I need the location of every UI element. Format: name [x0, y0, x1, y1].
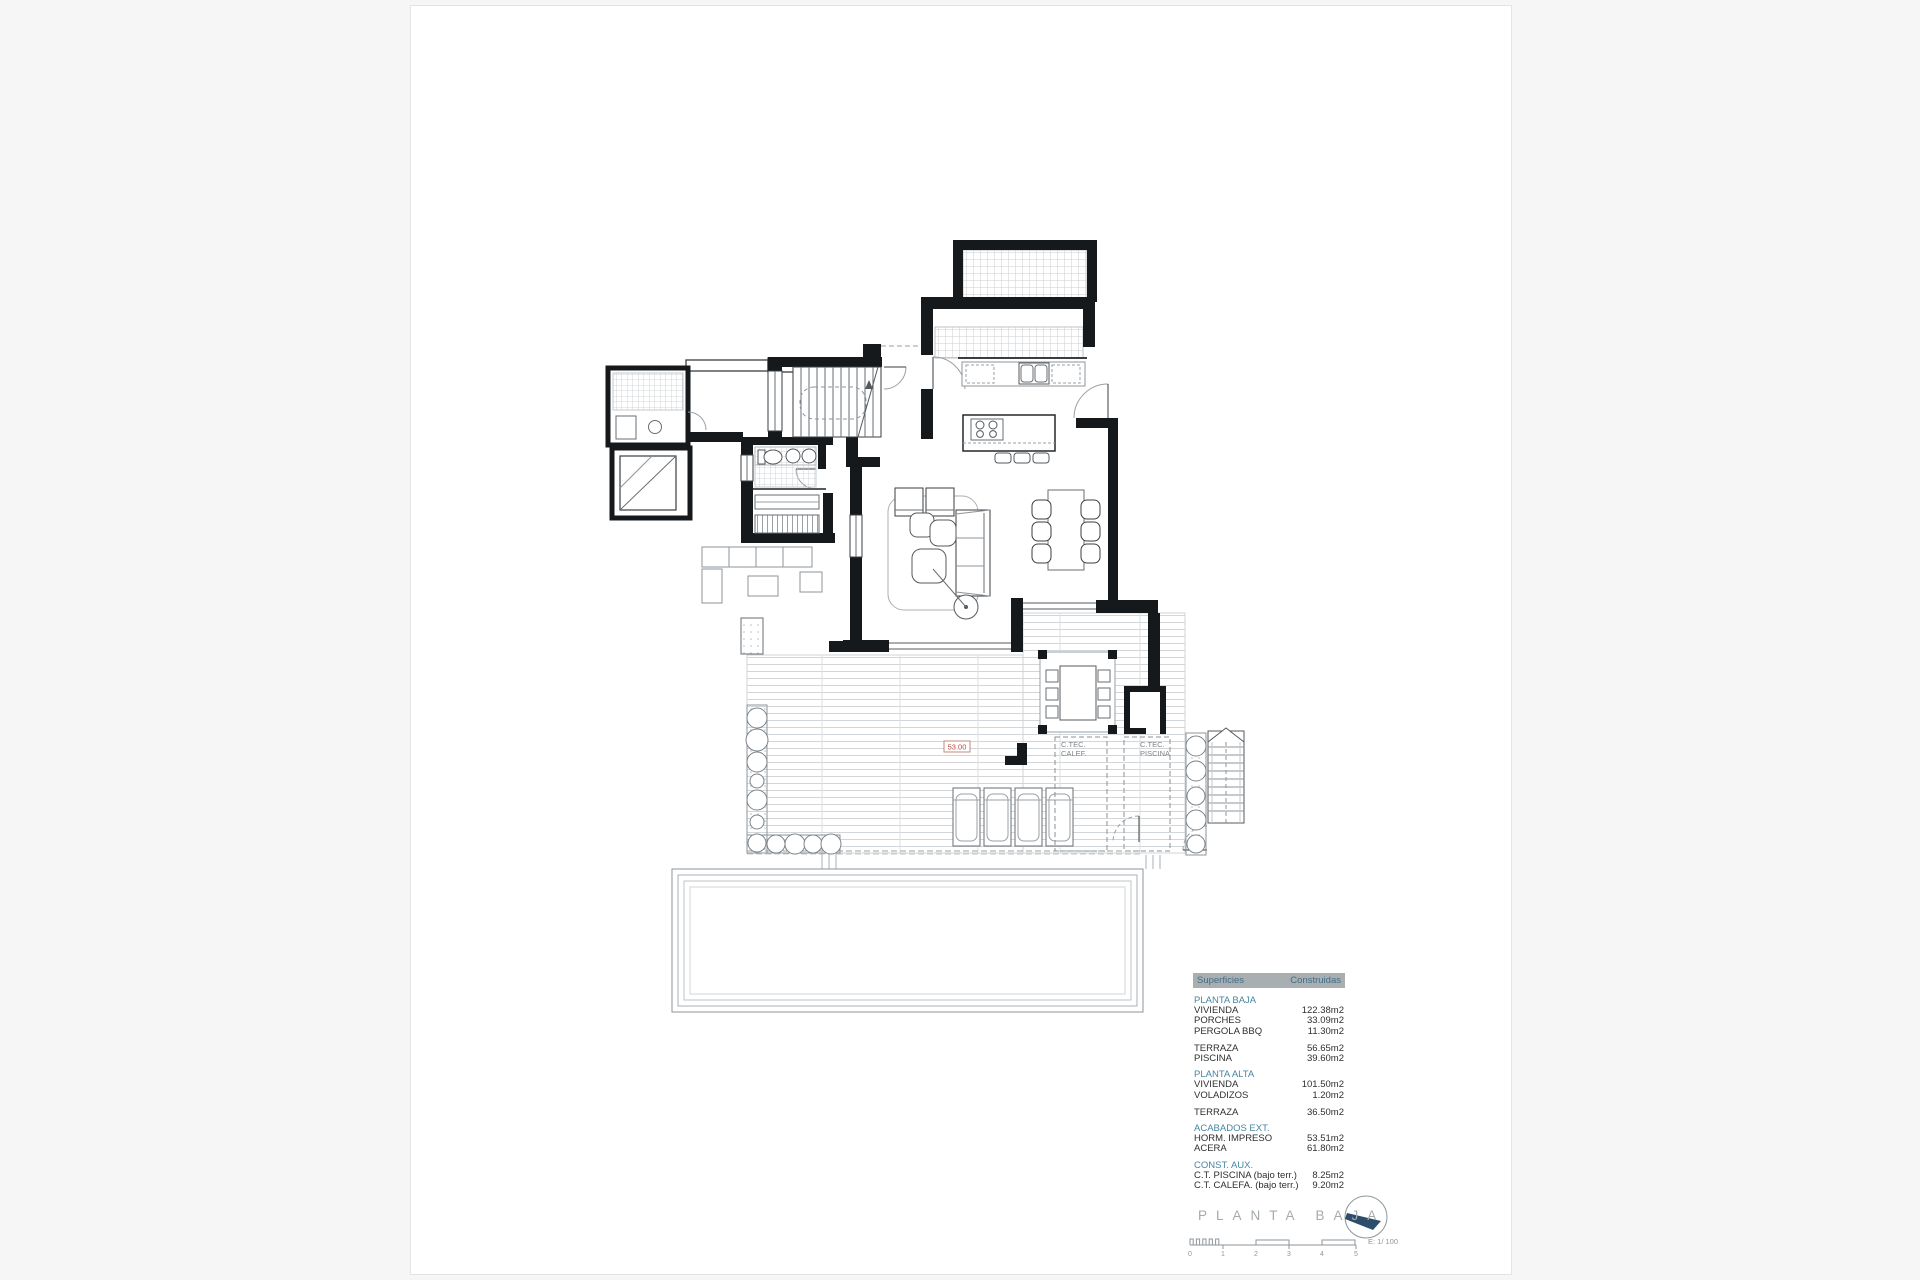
ctec-piscina-label-1: C.TEC.: [1140, 740, 1165, 749]
kitchen-porch: [881, 327, 1083, 358]
area-row: PISCINA39.60m2: [1193, 1054, 1345, 1064]
pergola-bbq: [953, 240, 1097, 302]
bathroom: [753, 447, 826, 489]
pool: [672, 869, 1143, 1012]
dining-set: [1032, 490, 1100, 570]
scale-bar: 0 1 2 3 4 5 E: 1/ 100: [1188, 1237, 1398, 1258]
closet-room: [755, 495, 819, 533]
level-mark-text: 53.00: [948, 743, 967, 752]
svg-text:4: 4: [1320, 1251, 1324, 1258]
ctec-calef-label-2: CALEF.: [1061, 749, 1086, 758]
area-row: C.T. CALEFA. (bajo terr.)9.20m2: [1193, 1181, 1345, 1191]
exterior-stairs: [1208, 728, 1244, 823]
area-row: TERRAZA36.50m2: [1193, 1108, 1345, 1118]
areas-col-superficies: Superficies: [1197, 975, 1244, 986]
pergola-dining: [1038, 650, 1117, 734]
area-row: PERGOLA BBQ11.30m2: [1193, 1027, 1345, 1037]
living-room: [888, 488, 990, 619]
area-row: ACERA61.80m2: [1193, 1144, 1345, 1154]
porch-lounge: [702, 547, 822, 654]
scale-ticks: 0 1 2 3 4 5: [1188, 1251, 1358, 1258]
ctec-piscina-label-2: PISCINA: [1140, 749, 1170, 758]
plan-title: PLANTA BAJA: [1198, 1208, 1398, 1223]
area-row: VOLADIZOS1.20m2: [1193, 1091, 1345, 1101]
scale-ratio-label: E: 1/ 100: [1368, 1237, 1398, 1246]
svg-text:1: 1: [1221, 1251, 1225, 1258]
areas-table: Superficies Construidas PLANTA BAJA VIVI…: [1193, 973, 1345, 1191]
svg-text:3: 3: [1287, 1251, 1291, 1258]
floorplan-sheet-view: { "sheet": { "title": "PLANTA BAJA", "sc…: [0, 0, 1920, 1280]
svg-text:0: 0: [1188, 1251, 1192, 1258]
kitchen: [958, 358, 1087, 463]
level-marker: 53.00: [944, 741, 970, 752]
areas-col-construidas: Construidas: [1290, 975, 1341, 986]
floor-plan-drawing: 53.00 C.TEC. CALEF. C.TEC. PISCINA 0 1 2…: [0, 0, 1920, 1280]
ctec-calef-label-1: C.TEC.: [1061, 740, 1086, 749]
svg-text:2: 2: [1254, 1251, 1258, 1258]
areas-table-header: Superficies Construidas: [1193, 973, 1345, 988]
svg-text:5: 5: [1354, 1251, 1358, 1258]
stairs: [793, 367, 881, 437]
